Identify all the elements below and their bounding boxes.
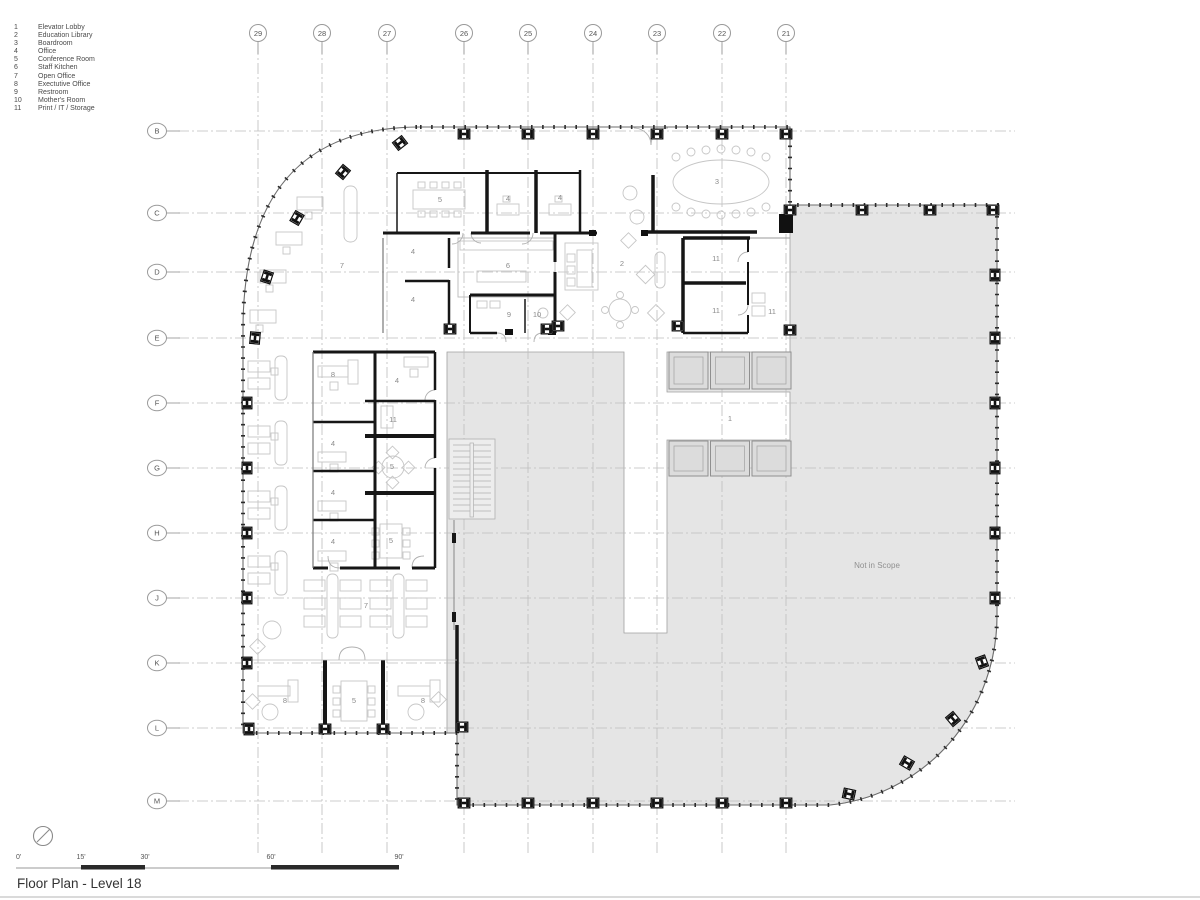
grid-bubble-col-21: 21: [778, 25, 795, 55]
steel-column-icon: [244, 723, 254, 735]
room-number-label: 4: [558, 193, 562, 202]
grid-bubble-col-24: 24: [585, 25, 602, 55]
room-number-label: 4: [331, 439, 335, 448]
legend-item: 1Elevator Lobby: [14, 24, 95, 32]
steel-column-icon: [784, 205, 796, 215]
legend-item: 2Education Library: [14, 32, 95, 40]
scale-bar: 0'15'30'60'90': [16, 854, 404, 870]
room-number-label: 6: [506, 261, 510, 270]
steel-column-icon: [522, 798, 534, 808]
steel-column-icon: [716, 798, 728, 808]
legend-item: 11Print / IT / Storage: [14, 105, 95, 113]
legend-item-number: 11: [14, 105, 38, 113]
grid-bubble-col-28: 28: [314, 25, 331, 55]
svg-text:K: K: [154, 659, 159, 668]
svg-text:L: L: [155, 724, 159, 733]
svg-text:D: D: [154, 268, 160, 277]
steel-column-icon: [587, 129, 599, 139]
legend-item-name: Open Office: [38, 73, 75, 81]
steel-column-icon: [716, 129, 728, 139]
steel-column-icon: [242, 657, 252, 669]
svg-text:C: C: [154, 209, 160, 218]
legend-item: 10Mother's Room: [14, 97, 95, 105]
legend-item-number: 7: [14, 73, 38, 81]
legend-item-name: Staff Kitchen: [38, 64, 78, 72]
svg-text:27: 27: [383, 29, 391, 38]
steel-column-icon: [336, 164, 351, 179]
legend-item: 6Staff Kitchen: [14, 64, 95, 72]
legend-item-number: 10: [14, 97, 38, 105]
legend-item: 9Restroom: [14, 89, 95, 97]
room-number-label: 5: [390, 462, 394, 471]
steel-column-icon: [856, 205, 868, 215]
room-number-label: 5: [352, 696, 356, 705]
legend-item-name: Mother's Room: [38, 97, 85, 105]
legend-item: 5Conference Room: [14, 56, 95, 64]
steel-column-icon: [242, 592, 252, 604]
scale-label: 30': [140, 854, 149, 861]
steel-column-icon: [842, 788, 855, 800]
svg-text:22: 22: [718, 29, 726, 38]
not-in-scope-label: Not in Scope: [854, 561, 900, 570]
grid-bubble-col-29: 29: [250, 25, 267, 55]
steel-column-icon: [552, 321, 564, 331]
grid-bubble-row-K: K: [148, 655, 181, 671]
grid-bubble-col-26: 26: [456, 25, 473, 55]
legend-item-number: 5: [14, 56, 38, 64]
stair: [449, 439, 495, 519]
svg-text:M: M: [154, 797, 160, 806]
steel-column-icon: [990, 332, 1000, 344]
legend-item-name: Exectutive Office: [38, 81, 90, 89]
steel-column-icon: [990, 462, 1000, 474]
legend-item: 8Exectutive Office: [14, 81, 95, 89]
steel-column-icon: [458, 129, 470, 139]
room-number-label: 9: [507, 310, 511, 319]
room-number-label: 8: [283, 696, 287, 705]
scale-label: 60': [266, 854, 275, 861]
room-number-label: 8: [331, 370, 335, 379]
legend-item: 4Office: [14, 48, 95, 56]
grid-bubble-col-25: 25: [520, 25, 537, 55]
grid-bubble-row-J: J: [148, 590, 181, 606]
steel-column-icon: [250, 332, 261, 344]
steel-column-icon: [444, 324, 456, 334]
room-number-label: 4: [411, 247, 415, 256]
svg-text:28: 28: [318, 29, 326, 38]
legend-item-number: 2: [14, 32, 38, 40]
sheet-title: Floor Plan - Level 18: [17, 876, 142, 891]
north-arrow-icon: [34, 827, 53, 846]
grid-bubble-row-L: L: [148, 720, 181, 736]
scale-label: 0': [16, 854, 21, 861]
steel-column-icon: [587, 798, 599, 808]
grid-bubble-row-E: E: [148, 330, 181, 346]
room-number-label: 2: [620, 259, 624, 268]
room-number-label: 11: [768, 307, 776, 316]
legend-item-number: 8: [14, 81, 38, 89]
svg-text:21: 21: [782, 29, 790, 38]
room-number-label: 4: [331, 537, 335, 546]
steel-column-icon: [242, 527, 252, 539]
svg-text:29: 29: [254, 29, 262, 38]
room-number-label: 11: [389, 415, 397, 424]
legend-item-number: 3: [14, 40, 38, 48]
scale-label: 90': [394, 854, 403, 861]
steel-column-icon: [242, 462, 252, 474]
steel-column-icon: [672, 321, 684, 331]
legend-item-number: 1: [14, 24, 38, 32]
grid-bubble-row-B: B: [148, 123, 181, 139]
grid-bubble-row-G: G: [148, 460, 181, 476]
room-number-label: 7: [364, 601, 368, 610]
legend-item-name: Boardroom: [38, 40, 73, 48]
steel-column-icon: [377, 724, 389, 734]
steel-column-icon: [651, 798, 663, 808]
room-number-label: 1: [728, 414, 732, 423]
room-number-label: 11: [712, 254, 720, 263]
room-number-label: 4: [395, 376, 399, 385]
steel-column-icon: [990, 527, 1000, 539]
room-number-label: 8: [421, 696, 425, 705]
room-number-label: 4: [506, 194, 510, 203]
room-number-label: 3: [715, 177, 719, 186]
steel-column-icon: [987, 205, 999, 215]
steel-column-icon: [458, 798, 470, 808]
legend-item-name: Print / IT / Storage: [38, 105, 95, 113]
legend-item-name: Elevator Lobby: [38, 24, 85, 32]
svg-text:H: H: [154, 529, 159, 538]
steel-column-icon: [990, 269, 1000, 281]
scale-label: 15': [76, 854, 85, 861]
steel-column-icon: [924, 205, 936, 215]
steel-column-icon: [392, 136, 407, 151]
room-number-label: 7: [340, 261, 344, 270]
steel-column-icon: [651, 129, 663, 139]
svg-text:B: B: [154, 127, 159, 136]
room-number-label: 11: [712, 306, 720, 315]
steel-column-icon: [242, 397, 252, 409]
steel-column-icon: [541, 324, 553, 334]
floor-plan-drawing: 292827262524232221BCDEFGHJKLM: [0, 0, 1200, 900]
grid-bubble-row-H: H: [148, 525, 181, 541]
room-legend: 1Elevator Lobby2Education Library3Boardr…: [14, 24, 95, 113]
steel-column-icon: [780, 129, 792, 139]
svg-text:23: 23: [653, 29, 661, 38]
legend-item: 7Open Office: [14, 73, 95, 81]
grid-bubble-col-22: 22: [714, 25, 731, 55]
svg-text:26: 26: [460, 29, 468, 38]
svg-text:J: J: [155, 594, 159, 603]
steel-column-icon: [784, 325, 796, 335]
room-number-label: 5: [438, 195, 442, 204]
grid-bubble-row-C: C: [148, 205, 181, 221]
floor-plan-sheet: 1Elevator Lobby2Education Library3Boardr…: [0, 0, 1200, 900]
room-number-label: 5: [389, 536, 393, 545]
legend-item-number: 6: [14, 64, 38, 72]
legend-item: 3Boardroom: [14, 40, 95, 48]
svg-text:24: 24: [589, 29, 597, 38]
steel-column-icon: [990, 397, 1000, 409]
legend-item-name: Education Library: [38, 32, 92, 40]
room-number-label: 10: [533, 310, 541, 319]
steel-column-icon: [780, 798, 792, 808]
steel-column-icon: [522, 129, 534, 139]
steel-column-icon: [456, 722, 468, 732]
legend-item-number: 4: [14, 48, 38, 56]
room-number-label: 4: [331, 488, 335, 497]
svg-text:E: E: [154, 334, 159, 343]
legend-item-name: Office: [38, 48, 56, 56]
grid-bubble-row-D: D: [148, 264, 181, 280]
legend-item-number: 9: [14, 89, 38, 97]
room-number-label: 4: [411, 295, 415, 304]
steel-column-icon: [990, 592, 1000, 604]
steel-column-icon: [319, 724, 331, 734]
grid-bubble-row-F: F: [148, 395, 181, 411]
legend-item-name: Restroom: [38, 89, 68, 97]
svg-text:F: F: [155, 399, 160, 408]
svg-text:G: G: [154, 464, 160, 473]
grid-bubble-col-23: 23: [649, 25, 666, 55]
legend-item-name: Conference Room: [38, 56, 95, 64]
grid-bubble-col-27: 27: [379, 25, 396, 55]
grid-bubble-row-M: M: [148, 793, 181, 809]
svg-text:25: 25: [524, 29, 532, 38]
